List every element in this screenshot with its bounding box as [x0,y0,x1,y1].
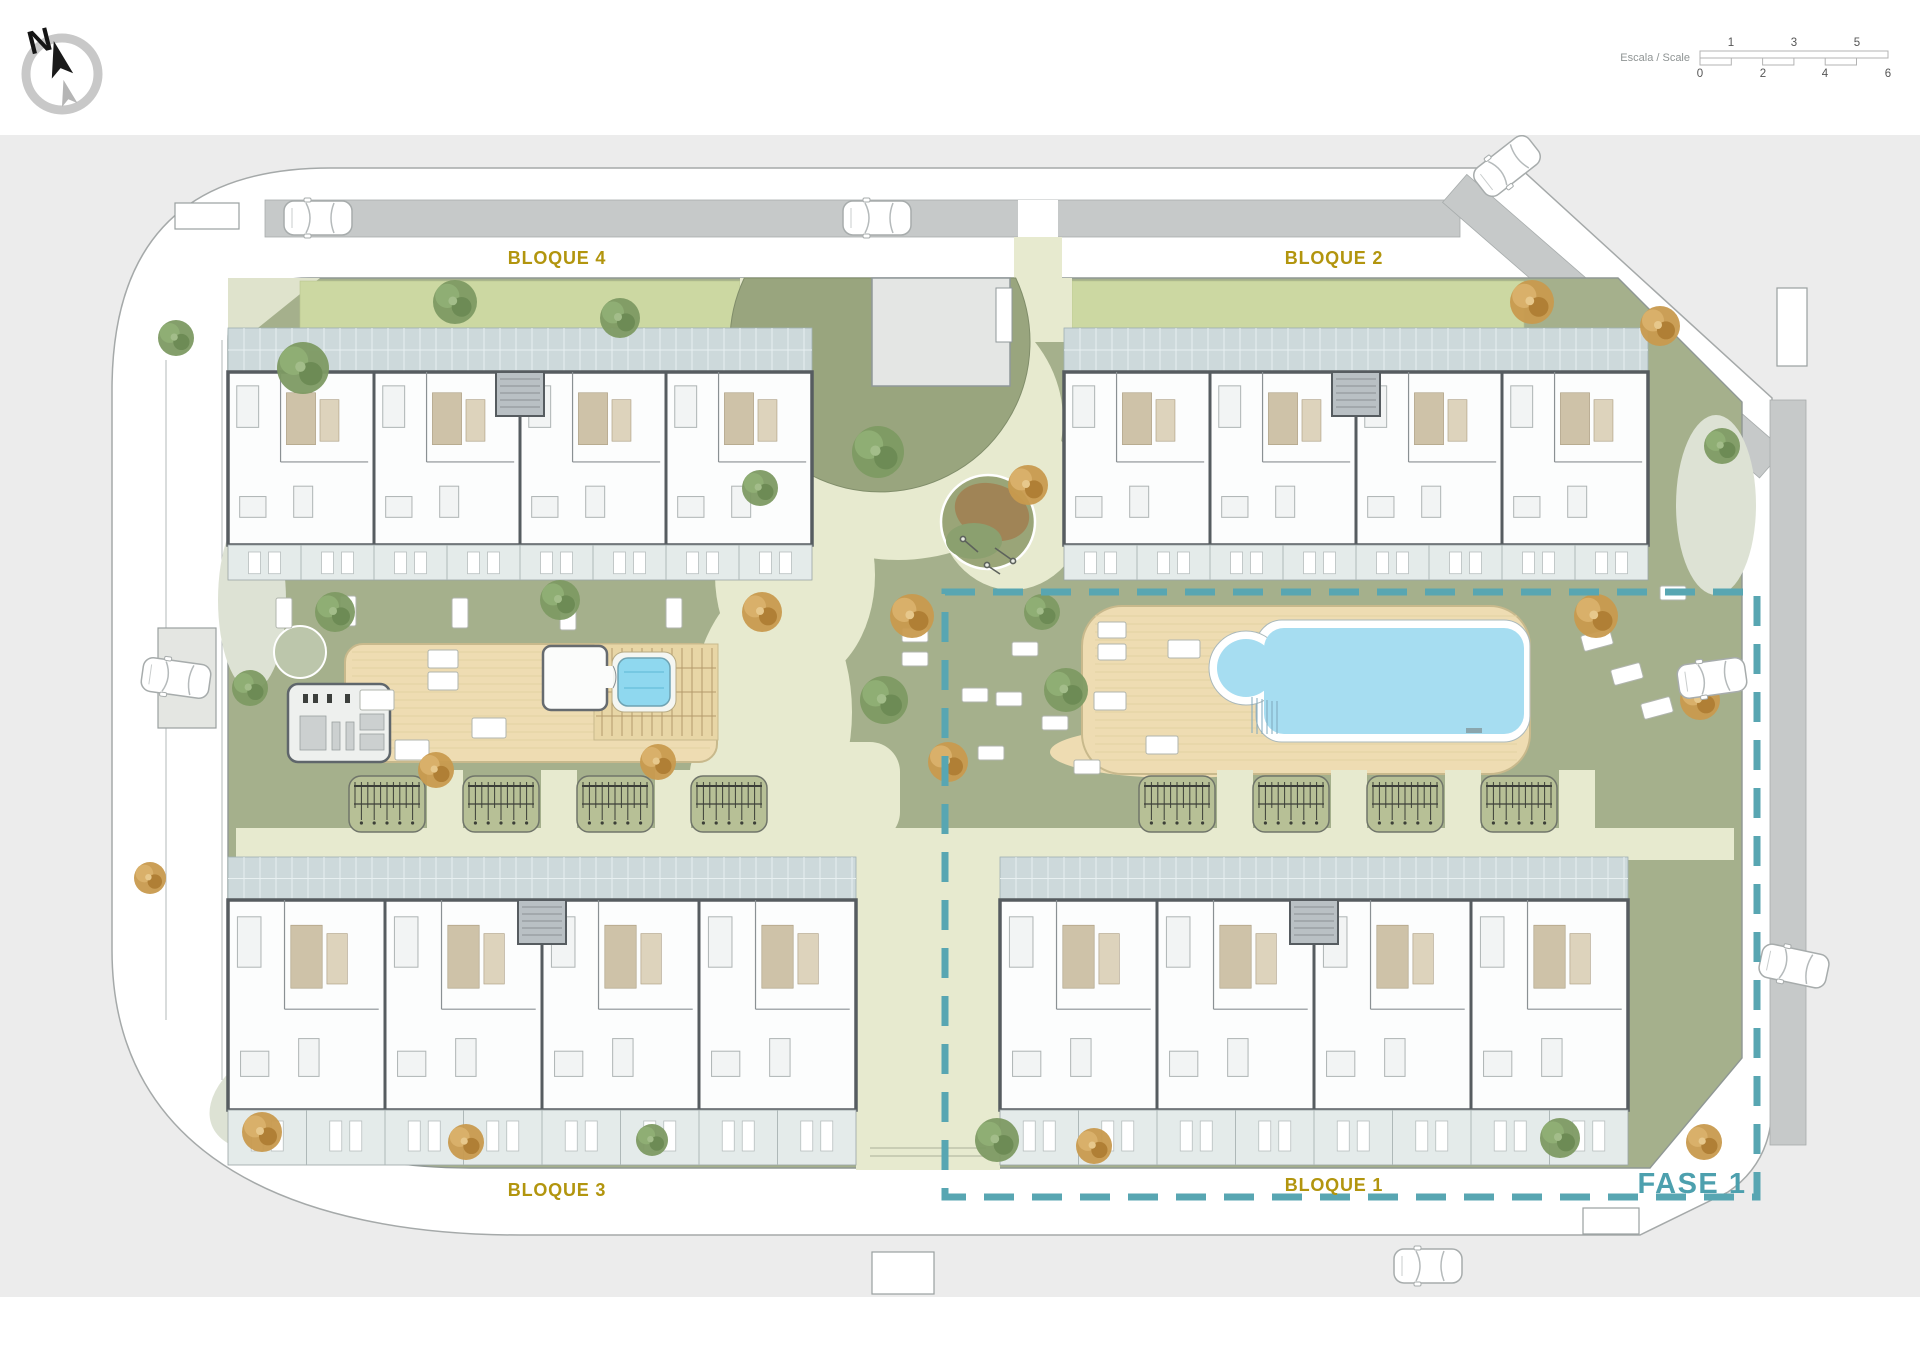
tree-icon [975,1118,1019,1162]
parking-pergola-icon [1253,776,1329,832]
sun-lounger [1012,642,1038,656]
tree-icon [852,426,904,478]
svg-text:1: 1 [1728,37,1734,49]
parking-pergola-icon [1139,776,1215,832]
tree-icon [540,580,580,620]
building-bloque-1 [1000,857,1628,1165]
svg-text:3: 3 [1791,37,1797,49]
tree-icon [158,320,194,356]
tree-icon [742,592,782,632]
tree-icon [1640,306,1680,346]
tree-icon [1008,465,1048,505]
parking-pergola-icon [463,776,539,832]
label-bloque-4: BLOQUE 4 [508,248,606,268]
tree-icon [1574,594,1618,638]
pool-main [1264,628,1524,734]
car-icon [1394,1246,1462,1286]
north-entrance-gap [1018,200,1058,237]
sun-lounger [902,652,928,666]
label-bloque-2: BLOQUE 2 [1285,248,1383,268]
car-icon [284,198,352,238]
tree-icon [277,342,329,394]
svg-text:2: 2 [1760,68,1766,80]
sun-lounger [1168,640,1200,658]
svg-text:6: 6 [1885,68,1891,80]
scale-bar: Escala / Scale 1 3 5 0 2 4 6 [1620,37,1891,80]
tree-icon [448,1124,484,1160]
tree-icon [1044,668,1088,712]
tree-icon [418,752,454,788]
car-icon [843,198,911,238]
sun-lounger [472,718,506,738]
tree-icon [1510,280,1554,324]
building-bloque-2 [1064,328,1648,580]
parking-pergola-icon [1481,776,1557,832]
label-bloque-1: BLOQUE 1 [1285,1175,1383,1195]
tree-icon [636,1124,668,1156]
building-bloque-3 [228,857,856,1165]
label-bloque-3: BLOQUE 3 [508,1180,606,1200]
tree-icon [1076,1128,1112,1164]
sun-lounger [428,672,458,690]
masterplan-page: BLOQUE 4 BLOQUE 2 BLOQUE 3 BLOQUE 1 FASE… [0,0,1920,1358]
pool-ladder [1466,728,1482,733]
sun-lounger [962,688,988,702]
sun-lounger [360,690,394,710]
parking-pergola-icon [577,776,653,832]
svg-text:4: 4 [1822,68,1829,80]
tree-icon [242,1112,282,1152]
site-plan-svg: BLOQUE 4 BLOQUE 2 BLOQUE 3 BLOQUE 1 FASE… [0,0,1920,1358]
sun-lounger [978,746,1004,760]
label-fase-1: FASE 1 [1638,1168,1747,1200]
tree-icon [134,862,166,894]
sun-lounger [1146,736,1178,754]
sun-lounger [276,598,292,628]
tree-icon [1540,1118,1580,1158]
tree-icon [315,592,355,632]
tree-icon [1686,1124,1722,1160]
parking-pergola-icon [349,776,425,832]
pool-pavilion [543,646,607,710]
tree-icon [742,470,778,506]
tree-icon [890,594,934,638]
compass-north-icon: N [24,20,98,110]
sun-lounger [1074,760,1100,774]
svg-text:5: 5 [1854,37,1860,49]
plaza-building [872,278,1010,386]
tree-icon [860,676,908,724]
parking-pergola-icon [1367,776,1443,832]
sun-lounger [666,598,682,628]
sun-lounger [428,650,458,668]
sun-lounger [1098,644,1126,660]
tree-icon [232,670,268,706]
sun-lounger [996,692,1022,706]
sun-lounger [1042,716,1068,730]
svg-text:0: 0 [1697,68,1703,80]
sun-lounger [1098,622,1126,638]
tree-icon [600,298,640,338]
tree-icon [1704,428,1740,464]
jacuzzi [618,658,670,706]
sun-lounger [1094,692,1126,710]
tree-icon [640,744,676,780]
parking-pergola-icon [691,776,767,832]
tree-icon [1024,594,1060,630]
tree-icon [433,280,477,324]
sun-lounger [452,598,468,628]
scale-label: Escala / Scale [1620,52,1690,64]
